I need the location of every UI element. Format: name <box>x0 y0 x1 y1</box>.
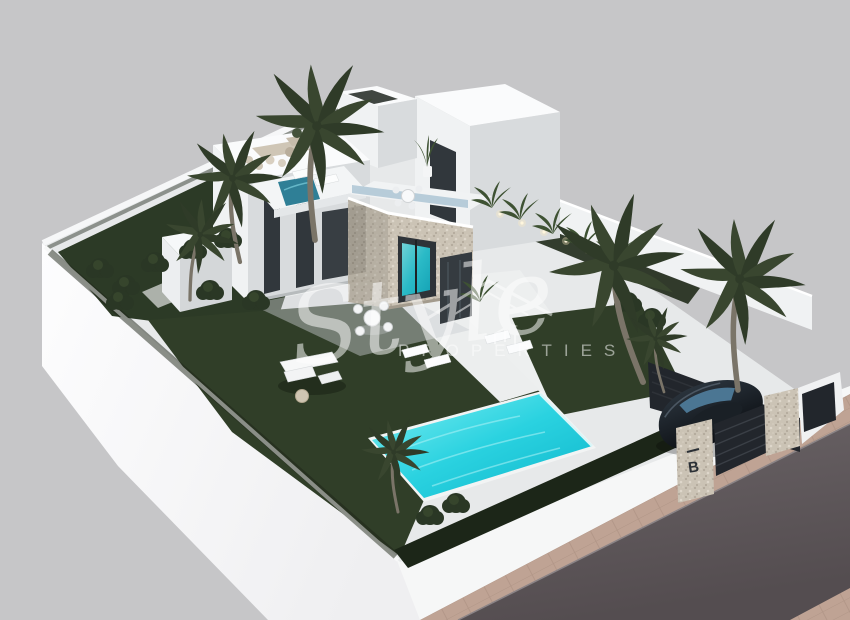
pouf <box>278 159 286 167</box>
terrace-chair <box>416 186 423 193</box>
watermark-caption: PROPERTIES <box>398 341 627 360</box>
window <box>430 140 456 224</box>
render-canvas: B Style PROPERTIES <box>0 0 850 620</box>
terrace-chair <box>409 203 416 210</box>
downlight <box>518 219 526 227</box>
villa-render-svg: B Style PROPERTIES <box>0 0 850 620</box>
downlight <box>496 210 504 218</box>
terrace-chair <box>393 187 400 194</box>
gate-pillar-sign: B <box>676 419 714 503</box>
terrace-chair <box>395 200 402 207</box>
gate-pillar <box>764 388 800 456</box>
wicker-basket <box>296 390 309 403</box>
terrace-table <box>402 190 415 203</box>
